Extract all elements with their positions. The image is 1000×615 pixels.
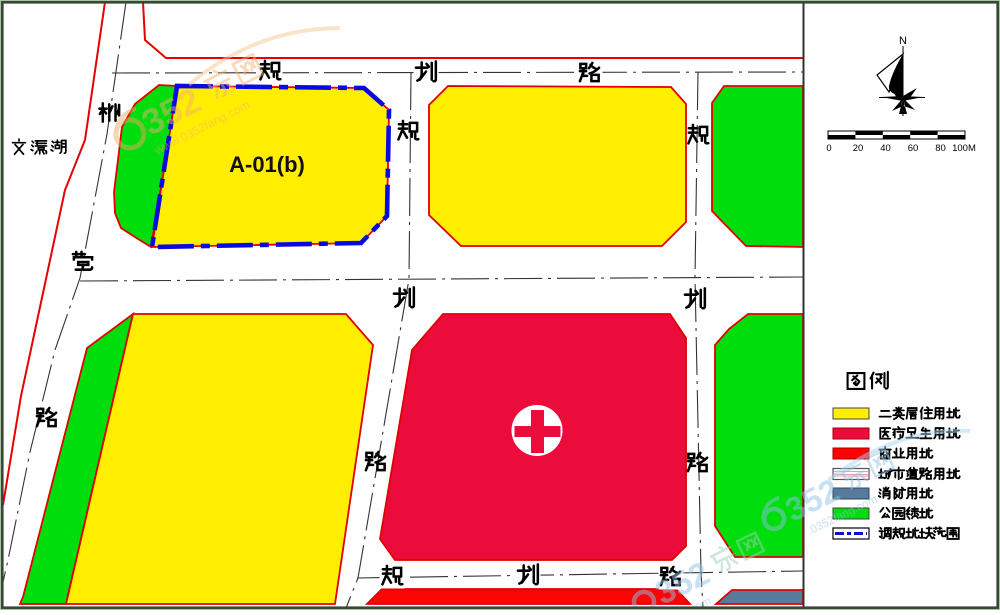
svg-text:0: 0 (826, 143, 831, 154)
svg-text:N: N (899, 35, 907, 47)
svg-text:40: 40 (880, 143, 891, 154)
svg-text:A-01(b): A-01(b) (229, 152, 305, 177)
svg-text:20: 20 (853, 143, 864, 154)
svg-text:60: 60 (908, 143, 919, 154)
svg-text:80: 80 (935, 143, 946, 154)
svg-text:100M: 100M (952, 143, 976, 154)
